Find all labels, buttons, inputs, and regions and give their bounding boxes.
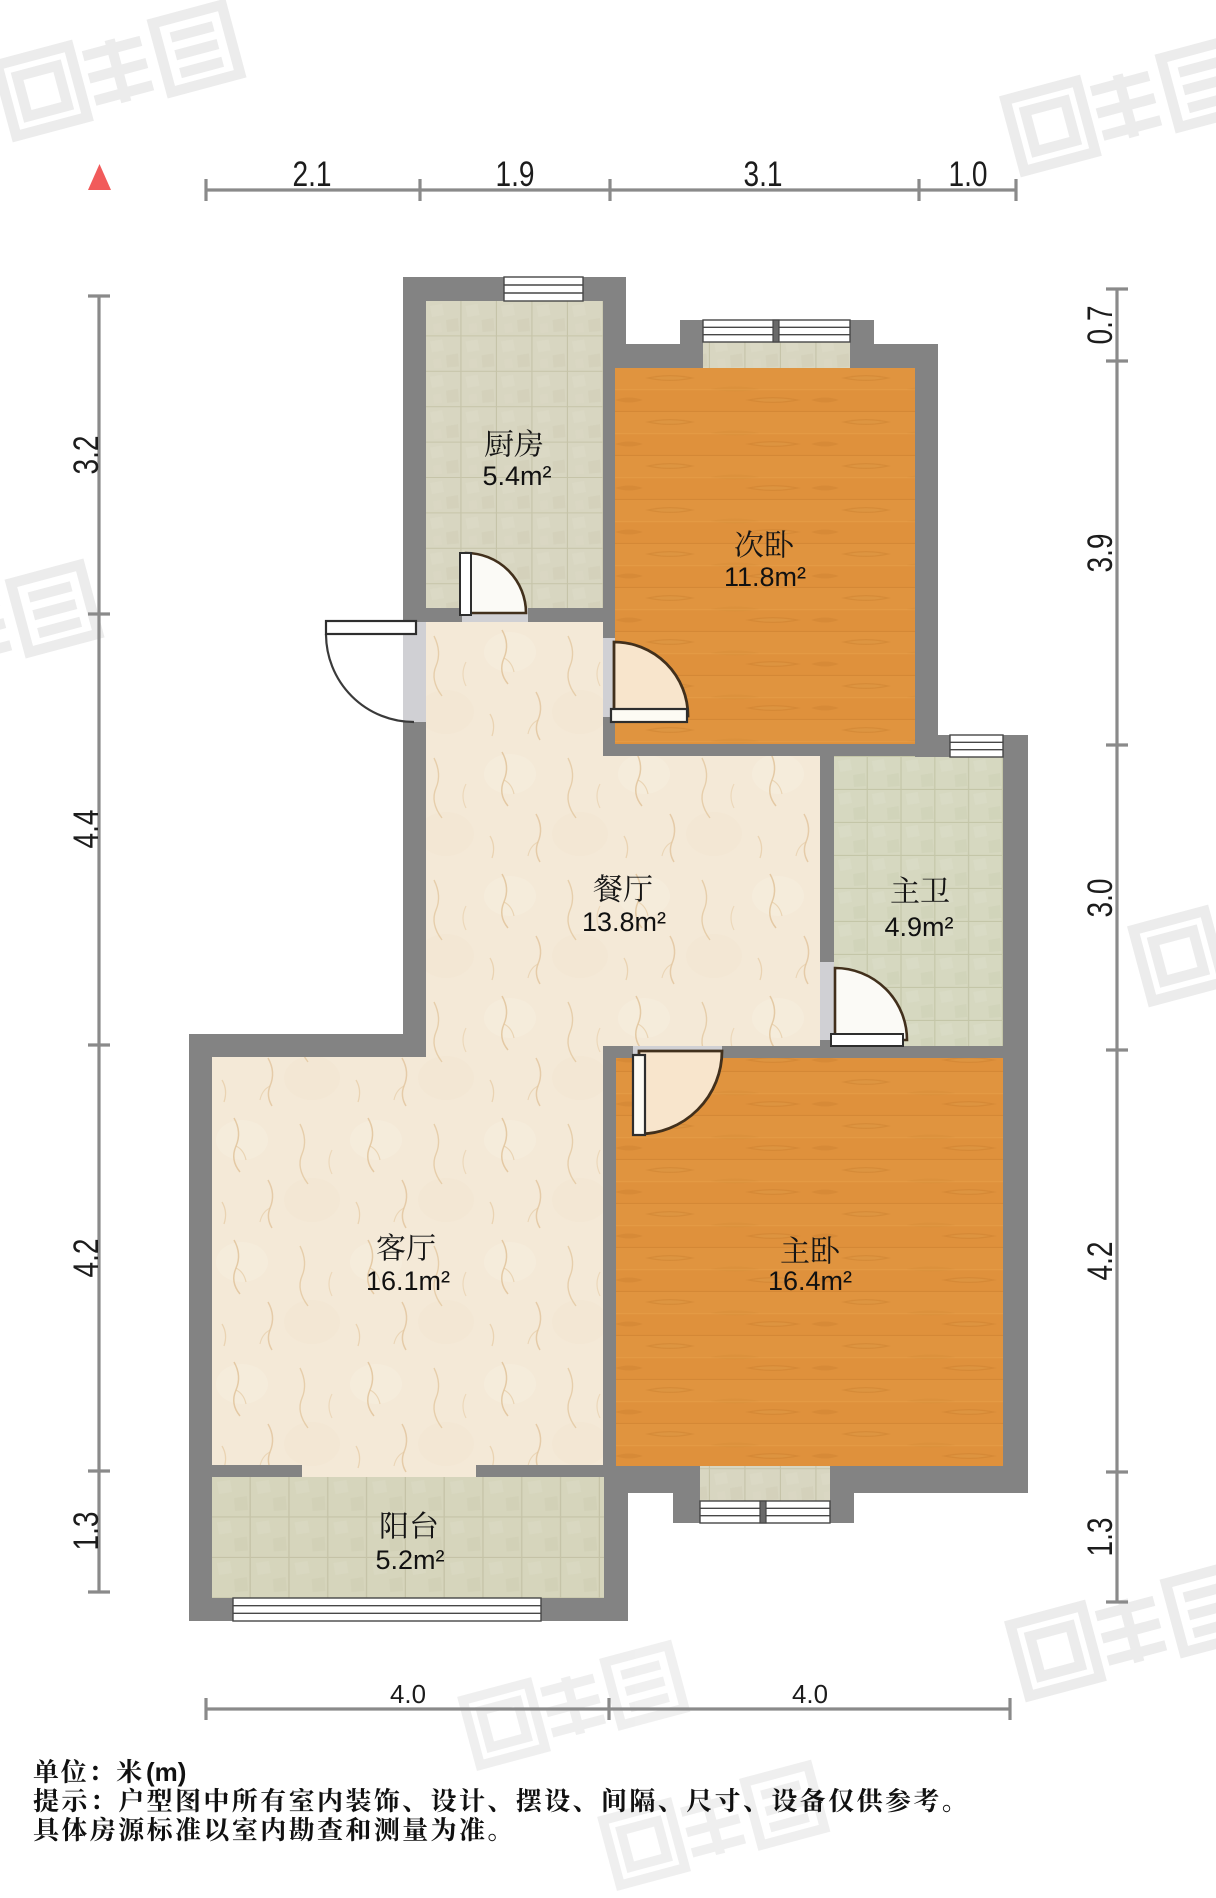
svg-text:4.0: 4.0 bbox=[390, 1679, 426, 1709]
svg-text:16.4m²: 16.4m² bbox=[768, 1266, 852, 1296]
svg-text:4.2: 4.2 bbox=[67, 1239, 106, 1278]
svg-text:1.9: 1.9 bbox=[496, 155, 535, 194]
svg-text:1.0: 1.0 bbox=[949, 155, 988, 194]
svg-text:3.9: 3.9 bbox=[1081, 534, 1120, 573]
svg-text:1.3: 1.3 bbox=[67, 1512, 106, 1551]
svg-text:2.1: 2.1 bbox=[293, 155, 332, 194]
svg-text:11.8m²: 11.8m² bbox=[724, 562, 806, 592]
svg-text:4.0: 4.0 bbox=[792, 1679, 828, 1709]
svg-text:3.1: 3.1 bbox=[744, 155, 783, 194]
svg-text:5.4m²: 5.4m² bbox=[482, 461, 551, 491]
svg-text:4.9m²: 4.9m² bbox=[884, 912, 953, 942]
svg-text:0.7: 0.7 bbox=[1081, 306, 1120, 345]
svg-text:4.2: 4.2 bbox=[1081, 1242, 1120, 1281]
svg-text:13.8m²: 13.8m² bbox=[582, 907, 666, 937]
svg-text:(m): (m) bbox=[146, 1757, 186, 1787]
svg-text:5.2m²: 5.2m² bbox=[375, 1545, 444, 1575]
svg-text:3.2: 3.2 bbox=[67, 436, 106, 475]
svg-text:1.3: 1.3 bbox=[1081, 1518, 1120, 1557]
svg-text:4.4: 4.4 bbox=[67, 810, 106, 849]
svg-text:3.0: 3.0 bbox=[1081, 879, 1120, 918]
svg-text:16.1m²: 16.1m² bbox=[366, 1266, 450, 1296]
